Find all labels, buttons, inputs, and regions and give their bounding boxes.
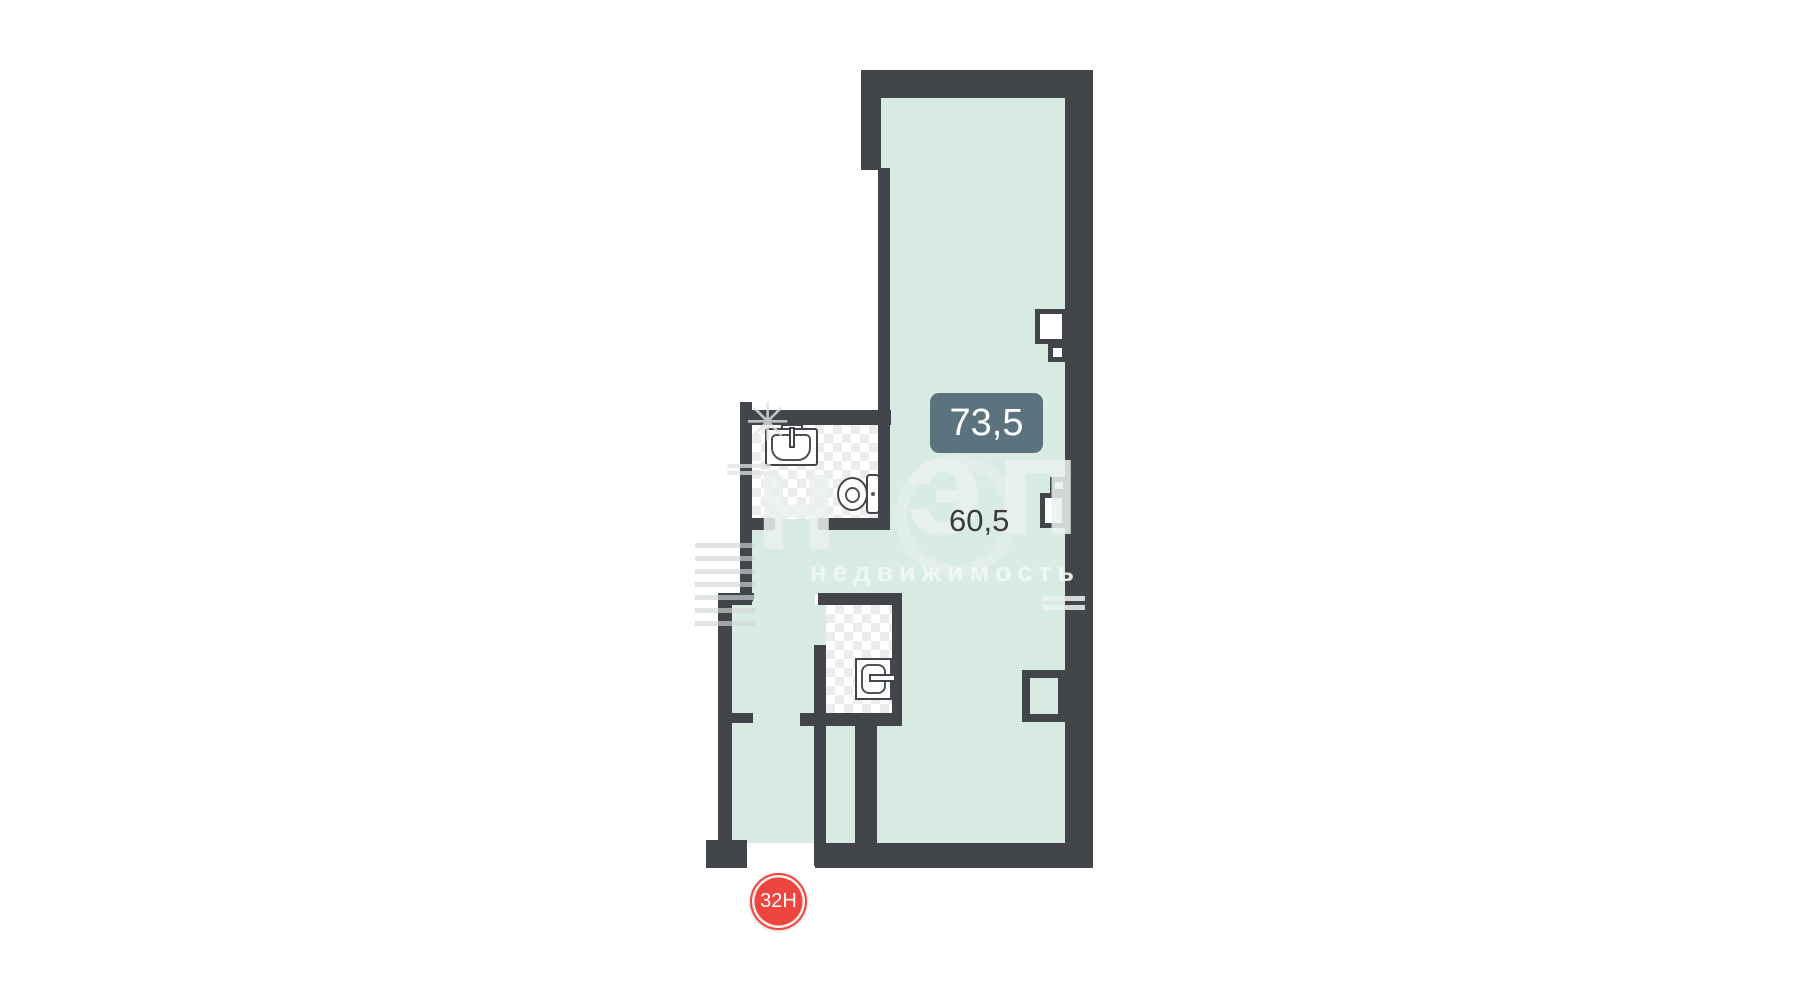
wall-bathroom-top (740, 410, 891, 425)
wall-bottom (815, 843, 1093, 868)
wall-wet-room-right (892, 593, 902, 724)
total-area-badge: 73,5 (930, 393, 1043, 453)
wall-bathroom-bottom-right (818, 518, 890, 530)
wall-left-lower (718, 593, 732, 843)
toilet-button (871, 492, 875, 496)
wall-corridor-stub (731, 713, 753, 723)
water-heater-spout (869, 674, 896, 682)
wall-partition-a (814, 645, 826, 866)
unit-number-badge: 32Н (750, 873, 807, 930)
wall-bathroom-bottom-left (740, 518, 775, 530)
wall-wet-room-top (818, 593, 902, 605)
floor-plan: ✳ н э п недвижимость 73,5 60,5 32Н (0, 0, 1800, 1000)
wall-inner-left (878, 168, 890, 530)
duct-symbol-bottom (1022, 670, 1066, 722)
wall-right (1065, 70, 1093, 868)
unit-number-value: 32Н (760, 890, 797, 913)
toilet-bowl-inner (845, 487, 860, 503)
wall-top-left (861, 98, 881, 170)
duct-symbol-mid-small (1050, 477, 1068, 494)
room-area-label: 60,5 (949, 503, 1009, 539)
duct-symbol-mid-large (1040, 493, 1067, 528)
duct-symbol-top-small (1048, 343, 1067, 362)
wet-room-doorway (814, 605, 826, 647)
passage-floor (752, 528, 892, 595)
wall-partition-b (855, 722, 877, 845)
duct-symbol-top-large (1035, 309, 1067, 344)
wall-top (861, 70, 1093, 98)
total-area-value: 73,5 (950, 402, 1024, 445)
wall-bottom-left-block (706, 840, 747, 868)
main-room-floor (881, 98, 1065, 843)
wall-bathroom-left (740, 410, 752, 605)
sink-tap-stem (789, 427, 795, 448)
